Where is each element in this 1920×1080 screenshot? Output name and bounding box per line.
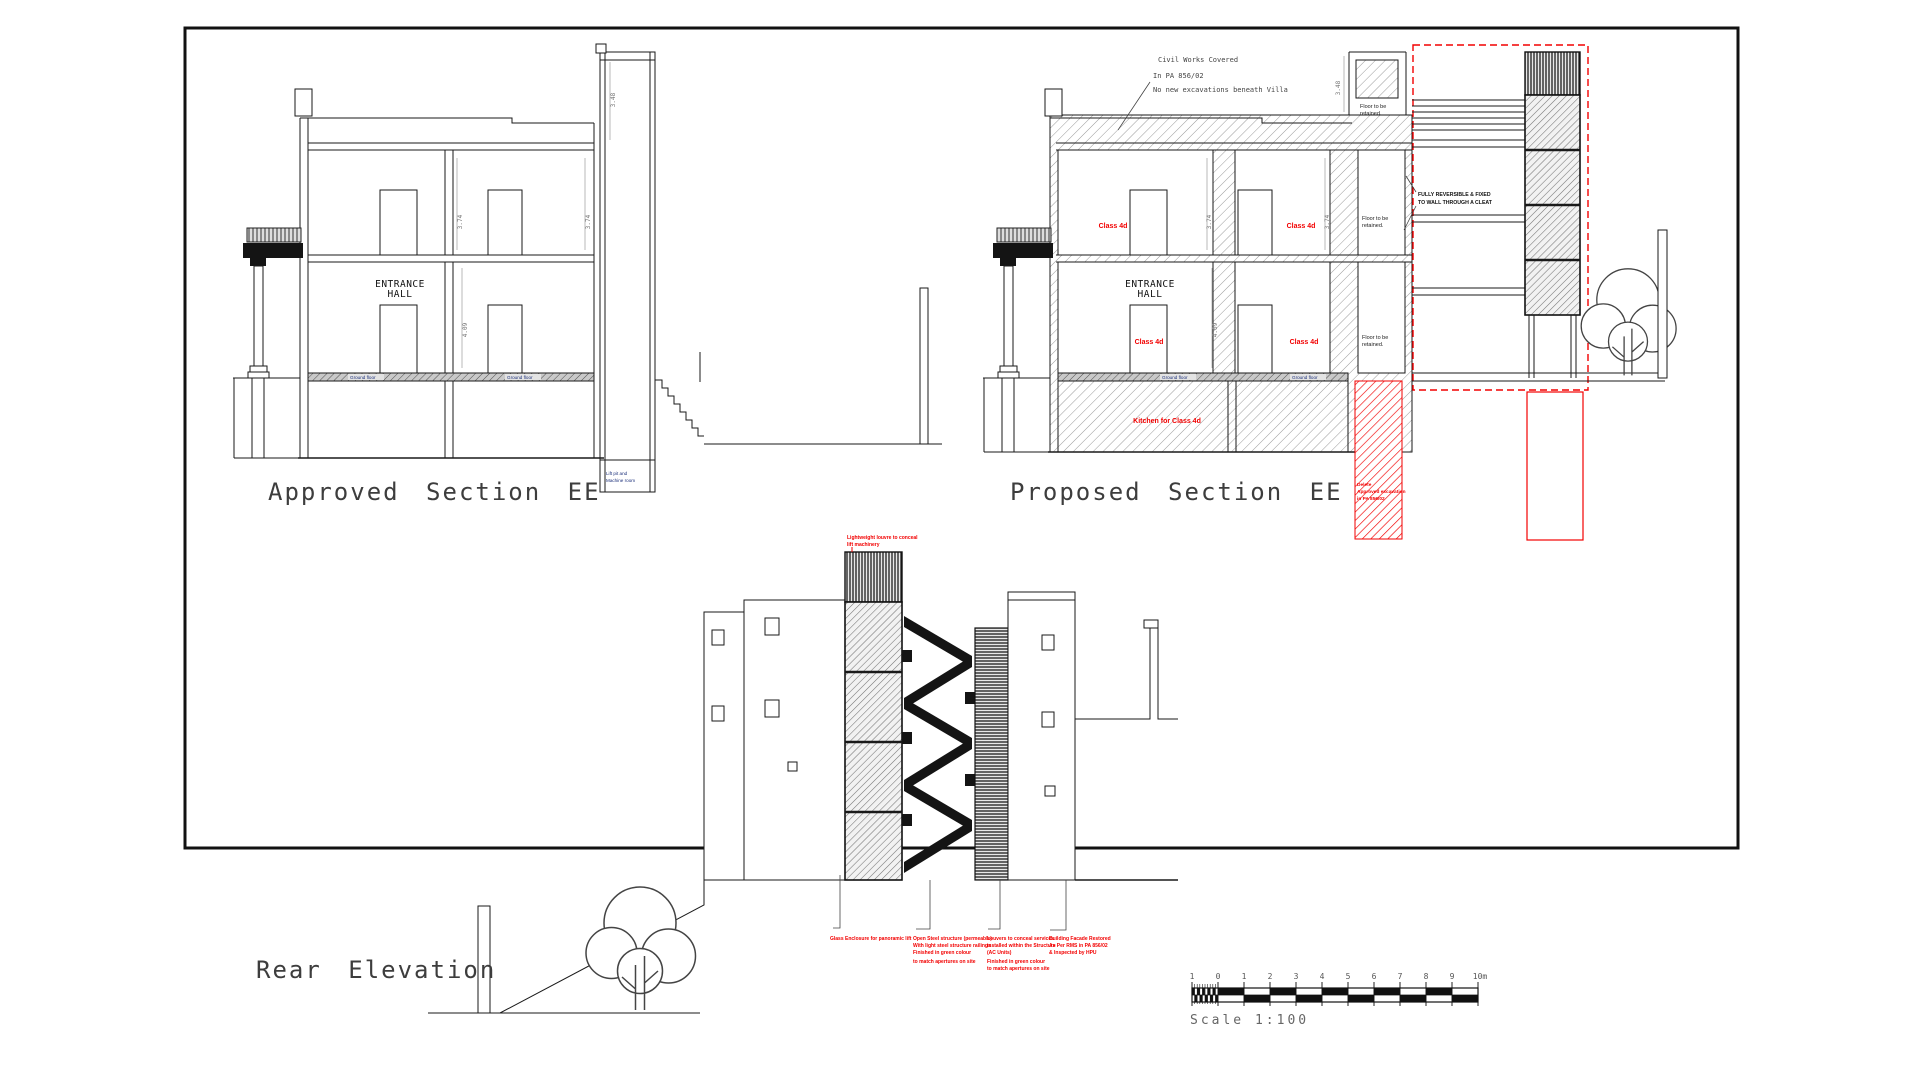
civil-works-note-line3: No new excavations beneath Villa	[1153, 86, 1288, 94]
slab-label: Ground floor	[1292, 375, 1318, 380]
civil-works-note-line2: In PA 856/02	[1153, 72, 1204, 80]
annotation-line: Building Facade Restored	[1049, 936, 1111, 942]
dim-tower: 3.48	[610, 92, 617, 107]
dim-upper-right: 3.74	[585, 214, 592, 229]
floor-retained-label: Floor to be	[1360, 104, 1386, 110]
scale-tick-label: 3	[1294, 972, 1299, 981]
delete-note-line1: Delete	[1357, 482, 1372, 488]
class4d-label: Class 4d	[1287, 223, 1316, 230]
rear-annotations: Glass Enclosure for panoramic lift Open …	[830, 936, 1111, 972]
dim-ground: 4.09	[1212, 322, 1219, 337]
civil-works-note-line1: Civil Works Covered	[1158, 56, 1238, 64]
tower-louvre	[1525, 52, 1580, 95]
scale-tick-label: 9	[1450, 972, 1455, 981]
proposed-section-title: Proposed Section EE	[1010, 478, 1343, 506]
annotation-line: installed within the Structure	[987, 943, 1056, 949]
class4d-label: Class 4d	[1135, 339, 1164, 346]
dim-upper-left: 3.74	[457, 214, 464, 229]
class4d-label: Class 4d	[1290, 339, 1319, 346]
annotation-line: (AC Units)	[987, 950, 1012, 956]
floor-retained-label: retained.	[1362, 342, 1384, 348]
architectural-drawing: 3.74 3.74 4.09 3.48 ENTRANCE HALL Ground…	[0, 0, 1920, 1080]
delete-note-line2: Approved excavation	[1357, 489, 1406, 495]
drawing-sheet-page: 3.74 3.74 4.09 3.48 ENTRANCE HALL Ground…	[0, 0, 1920, 1080]
scale-caption: Scale 1:100	[1190, 1013, 1309, 1028]
annotation-line: & Inspected by HPU	[1049, 950, 1097, 956]
reversible-note-line1: FULLY REVERSIBLE & FIXED	[1418, 192, 1491, 198]
scale-tick-label: 0	[1216, 972, 1221, 981]
scale-tick-label: 4	[1320, 972, 1325, 981]
dim-upper-left: 3.74	[1206, 214, 1213, 229]
annotation-line: Finished in green colour	[913, 950, 971, 956]
approved-section-title: Approved Section EE	[268, 478, 601, 506]
class4d-label: Class 4d	[1099, 223, 1128, 230]
scale-tick-label: 6	[1372, 972, 1377, 981]
scale-tick-label: 7	[1398, 972, 1403, 981]
scale-tick-label: 1	[1242, 972, 1247, 981]
annotation-line: With light steel structure railings	[913, 943, 991, 949]
louvre-note-line1: Lightweight louvre to conceal	[847, 535, 918, 541]
slab-label: Ground floor	[350, 375, 376, 380]
scale-tick-label: 10m	[1473, 972, 1488, 981]
reversible-note-line2: TO WALL THROUGH A CLEAT	[1418, 200, 1493, 206]
rear-tower-louvre	[845, 552, 902, 602]
annotation-line: Finished in green colour	[987, 959, 1045, 965]
annotation-line: Glass Enclosure for panoramic lift	[830, 936, 912, 942]
floor-retained-label: retained.	[1360, 111, 1382, 117]
entrance-hall-label-line2: HALL	[388, 289, 413, 300]
scale-tick-label: 5	[1346, 972, 1351, 981]
slab-label: Ground floor	[507, 375, 533, 380]
lift-pit-label-line2: Machine room	[606, 478, 635, 483]
floor-retained-label: Floor to be	[1362, 216, 1388, 222]
annotation-line: to match apertures on site	[913, 959, 976, 965]
floor-retained-label: retained.	[1362, 223, 1384, 229]
annotation-line: As Per RMS in PA 856/02	[1049, 943, 1108, 949]
kitchen-label: Kitchen for Class 4d	[1133, 418, 1201, 425]
annotation-line: to match apertures on site	[987, 966, 1050, 972]
dim-upper-right: 3.74	[1324, 214, 1331, 229]
dim-tower: 3.48	[1335, 80, 1342, 95]
rear-elevation-title: Rear Elevation	[256, 956, 496, 984]
proposed-pit-outline	[1527, 392, 1583, 540]
slab-label: Ground floor	[1162, 375, 1188, 380]
annotation-line: Louvers to conceal services	[987, 936, 1054, 942]
scale-tick-label: 8	[1424, 972, 1429, 981]
delete-note-line3: in PA 856/02	[1357, 496, 1385, 502]
dim-ground: 4.09	[462, 322, 469, 337]
scale-tick-label: 2	[1268, 972, 1273, 981]
floor-retained-label: Floor to be	[1362, 335, 1388, 341]
scale-bar: 1 0 1 2 3 4 5 6 7 8 9 10m	[1190, 972, 1488, 1028]
annotation-line: Open Steel structure (permeable)	[913, 936, 992, 942]
lift-pit-label-line1: Lift pit and	[606, 471, 628, 476]
tree	[586, 887, 696, 1010]
sheet-border	[185, 28, 1738, 848]
entrance-hall-label-line2: HALL	[1138, 289, 1163, 300]
services-louvre	[975, 628, 1008, 880]
scale-tick-label: 1	[1190, 972, 1195, 981]
